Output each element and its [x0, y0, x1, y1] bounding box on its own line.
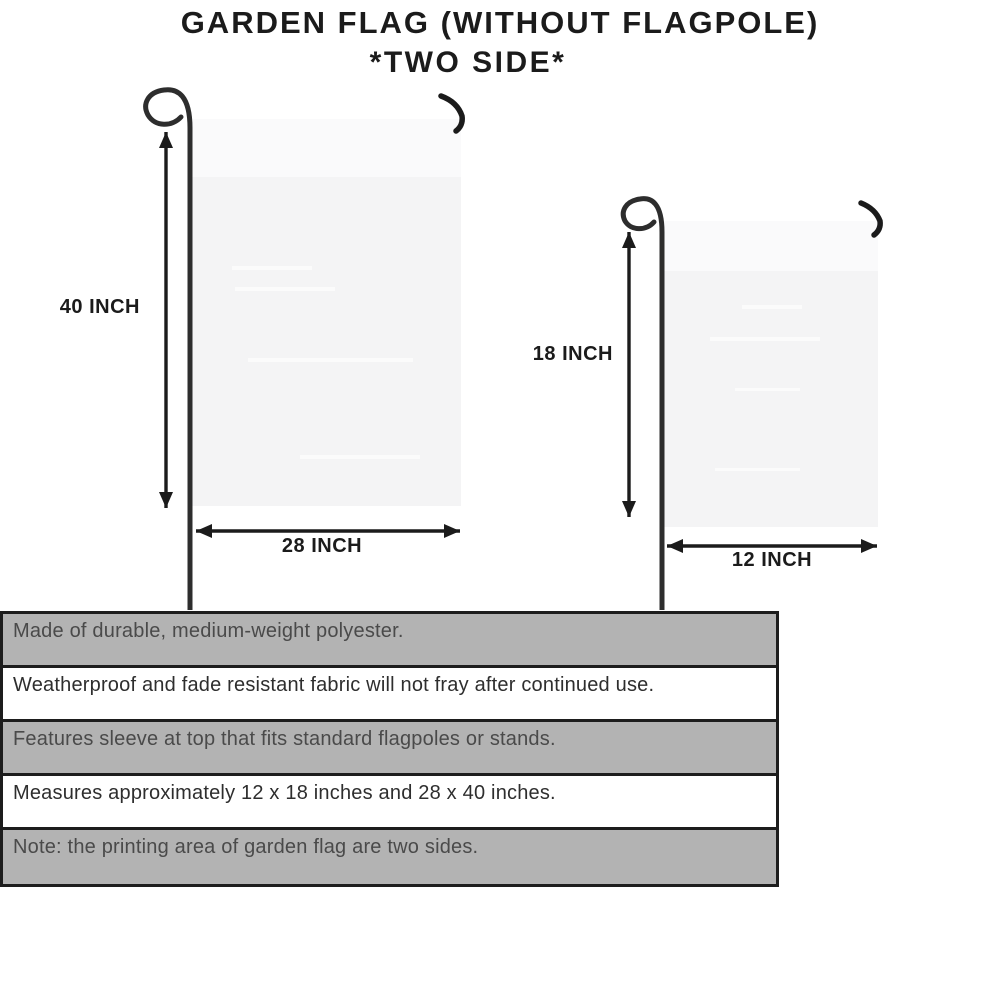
large-flag-fold-line	[300, 455, 420, 459]
large-flag-width-label: 28 INCH	[222, 535, 422, 558]
feature-row-sleeve: Features sleeve at top that fits standar…	[3, 722, 776, 776]
small-flag-fold-line	[710, 337, 820, 341]
small-flag-sleeve	[662, 221, 878, 271]
small-flag-fold-line	[735, 388, 800, 391]
product-info-image: GARDEN FLAG (WITHOUT FLAGPOLE) *TWO SIDE…	[0, 0, 1000, 1000]
large-flag-fold-line	[232, 266, 312, 270]
large-flag-fold-line	[235, 287, 335, 291]
small-flag-width-label: 12 INCH	[672, 549, 872, 572]
features-table: Made of durable, medium-weight polyester…	[0, 611, 779, 887]
large-flag-sleeve	[189, 119, 461, 177]
small-flag-fold-line	[742, 305, 802, 309]
feature-row-measurements: Measures approximately 12 x 18 inches an…	[3, 776, 776, 830]
large-flag-height-label: 40 INCH	[20, 296, 140, 319]
flag-dimension-diagram	[0, 0, 1000, 610]
large-flag-fabric	[189, 119, 461, 506]
large-flag-pole	[146, 90, 190, 610]
feature-row-weatherproof: Weatherproof and fade resistant fabric w…	[3, 668, 776, 722]
large-flag-fold-line	[248, 358, 413, 362]
feature-row-note: Note: the printing area of garden flag a…	[3, 830, 776, 884]
small-flag-fold-line	[715, 468, 800, 471]
small-flag-height-label: 18 INCH	[463, 343, 613, 366]
feature-row-material: Made of durable, medium-weight polyester…	[3, 614, 776, 668]
